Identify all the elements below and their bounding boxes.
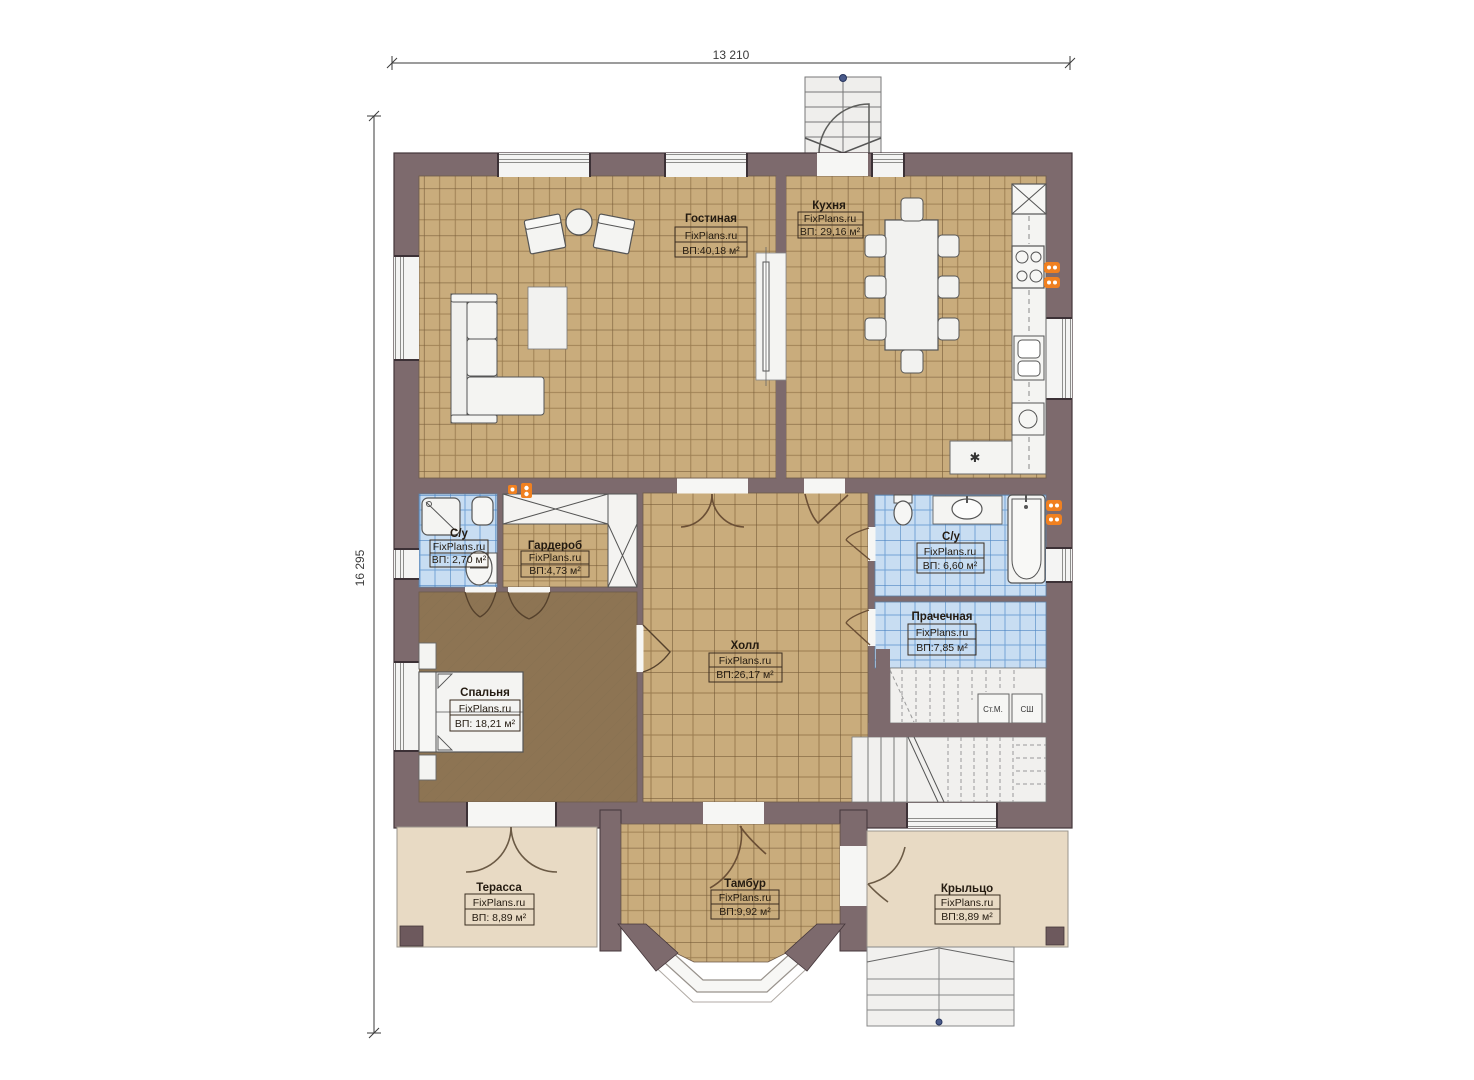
- svg-text:16 295: 16 295: [353, 549, 367, 586]
- svg-text:FixPlans.ru: FixPlans.ru: [804, 213, 857, 225]
- svg-text:ВП: 2,70 м²: ВП: 2,70 м²: [432, 554, 487, 566]
- svg-text:Гостиная: Гостиная: [685, 213, 737, 225]
- svg-text:FixPlans.ru: FixPlans.ru: [719, 892, 772, 904]
- svg-text:FixPlans.ru: FixPlans.ru: [941, 897, 994, 909]
- svg-text:ВП:9,92 м²: ВП:9,92 м²: [719, 906, 771, 918]
- svg-text:ВП:4,73 м²: ВП:4,73 м²: [529, 565, 581, 577]
- svg-text:Гардероб: Гардероб: [528, 540, 582, 552]
- svg-text:Холл: Холл: [731, 640, 760, 652]
- svg-text:FixPlans.ru: FixPlans.ru: [685, 230, 738, 242]
- svg-text:FixPlans.ru: FixPlans.ru: [719, 655, 772, 667]
- svg-text:FixPlans.ru: FixPlans.ru: [924, 546, 977, 558]
- svg-text:ВП:7,85 м²: ВП:7,85 м²: [916, 642, 968, 654]
- svg-text:ВП:40,18 м²: ВП:40,18 м²: [682, 245, 740, 257]
- svg-text:ВП: 29,16 м²: ВП: 29,16 м²: [800, 226, 861, 238]
- svg-text:Прачечная: Прачечная: [912, 611, 973, 623]
- svg-text:Ст.М.: Ст.М.: [983, 705, 1003, 714]
- svg-text:Крыльцо: Крыльцо: [941, 883, 993, 895]
- svg-text:СШ: СШ: [1020, 705, 1033, 714]
- svg-text:✱: ✱: [970, 450, 981, 465]
- svg-text:FixPlans.ru: FixPlans.ru: [433, 541, 486, 553]
- svg-text:ВП: 8,89 м²: ВП: 8,89 м²: [472, 912, 527, 924]
- svg-text:Спальня: Спальня: [460, 687, 510, 699]
- svg-text:ВП: 6,60 м²: ВП: 6,60 м²: [923, 560, 978, 572]
- svg-text:FixPlans.ru: FixPlans.ru: [473, 897, 526, 909]
- svg-text:FixPlans.ru: FixPlans.ru: [916, 627, 969, 639]
- svg-text:FixPlans.ru: FixPlans.ru: [459, 703, 512, 715]
- svg-text:ВП:26,17 м²: ВП:26,17 м²: [716, 669, 774, 681]
- svg-text:13 210: 13 210: [713, 48, 750, 62]
- svg-text:Терасса: Терасса: [476, 882, 522, 894]
- svg-text:Тамбур: Тамбур: [724, 878, 766, 890]
- svg-text:ВП: 18,21 м²: ВП: 18,21 м²: [455, 718, 516, 730]
- svg-text:С/у: С/у: [450, 528, 469, 540]
- svg-text:С/у: С/у: [942, 531, 961, 543]
- svg-text:Кухня: Кухня: [812, 200, 846, 212]
- svg-text:FixPlans.ru: FixPlans.ru: [529, 552, 582, 564]
- svg-text:ВП:8,89 м²: ВП:8,89 м²: [941, 911, 993, 923]
